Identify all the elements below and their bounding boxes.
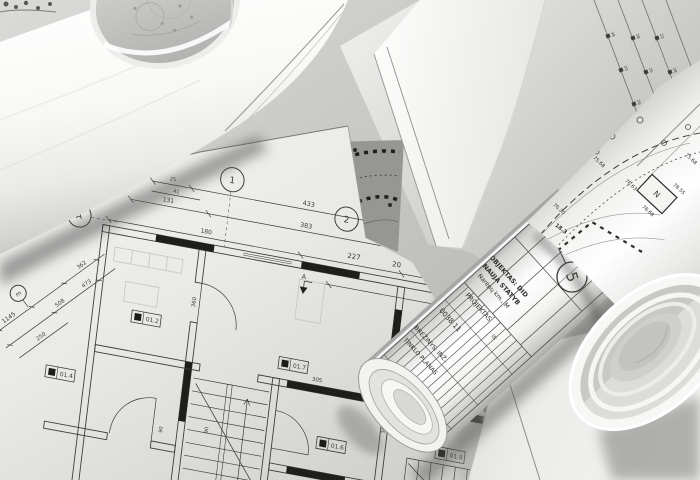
dim-label: 20: [392, 260, 402, 270]
scene: 38 23 25 28 25 23 28 1145 362 508 473 25…: [0, 0, 700, 480]
grid-bubble-label: 1: [229, 176, 236, 187]
dim-label: 90: [158, 426, 165, 433]
dim-label: 90: [204, 426, 211, 433]
blueprint-photo: 38 23 25 28 25 23 28 1145 362 508 473 25…: [0, 0, 700, 480]
grid-bubble-label: 2: [343, 215, 350, 226]
